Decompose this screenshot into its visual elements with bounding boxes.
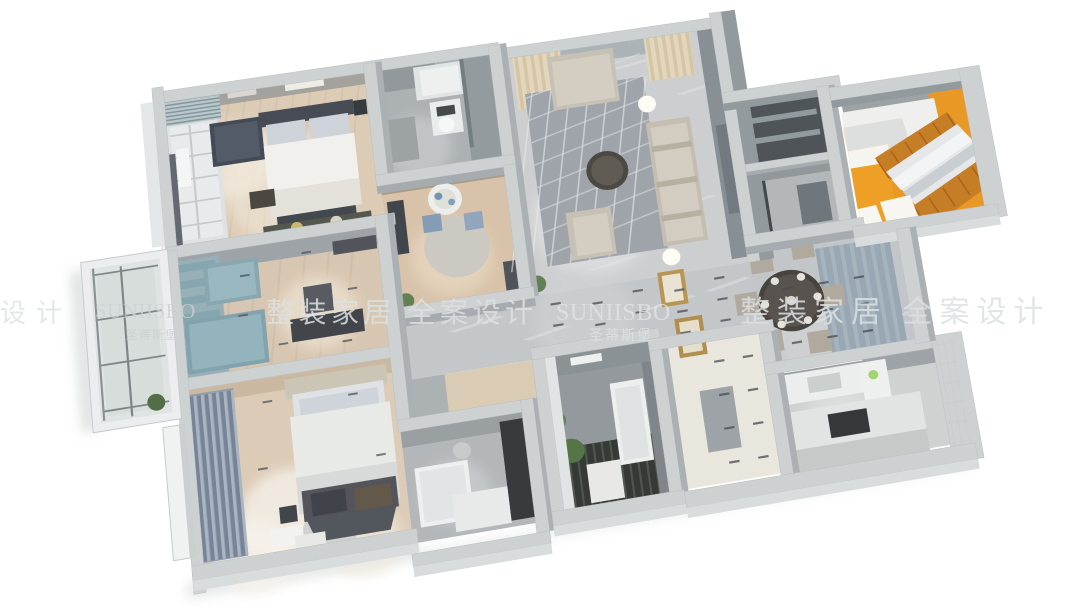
svg-text:圣蒂斯堡: 圣蒂斯堡 bbox=[589, 328, 653, 344]
svg-text:圣蒂斯堡: 圣蒂斯堡 bbox=[126, 327, 178, 342]
svg-text:SUNIISBO: SUNIISBO bbox=[95, 299, 196, 323]
svg-text:SUNIISBO: SUNIISBO bbox=[556, 300, 671, 326]
svg-text:设计: 设计 bbox=[0, 299, 72, 328]
svg-text:整装家居 全案设计: 整装家居 全案设计 bbox=[266, 297, 538, 329]
svg-text:整装家居 全案设计: 整装家居 全案设计 bbox=[740, 296, 1051, 329]
